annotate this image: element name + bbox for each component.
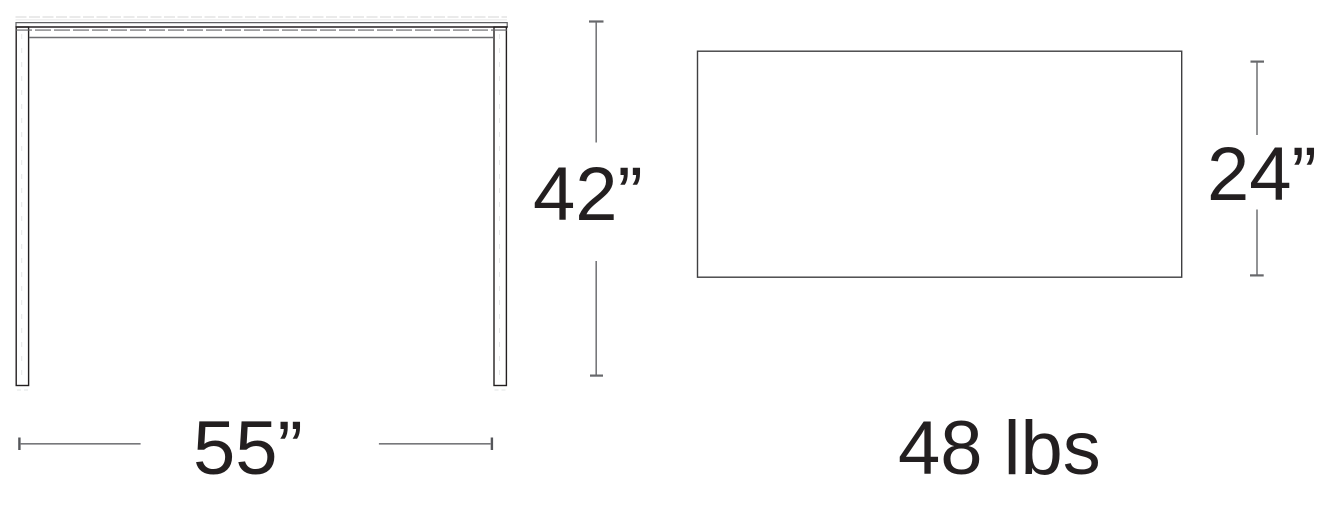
svg-text:24”: 24”	[1207, 132, 1317, 217]
svg-text:48 lbs: 48 lbs	[898, 406, 1101, 491]
svg-text:42”: 42”	[533, 152, 643, 237]
svg-text:55”: 55”	[193, 406, 303, 491]
